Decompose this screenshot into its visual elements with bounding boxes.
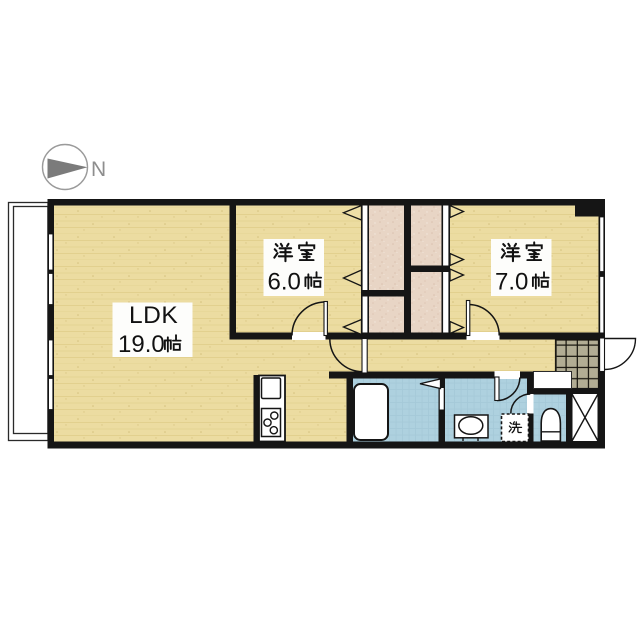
svg-text:N: N — [91, 158, 106, 181]
svg-text:19.0: 19.0 — [118, 331, 165, 358]
svg-text:6.0: 6.0 — [268, 269, 301, 296]
svg-text:LDK: LDK — [129, 302, 178, 329]
svg-text:7.0: 7.0 — [495, 269, 528, 296]
